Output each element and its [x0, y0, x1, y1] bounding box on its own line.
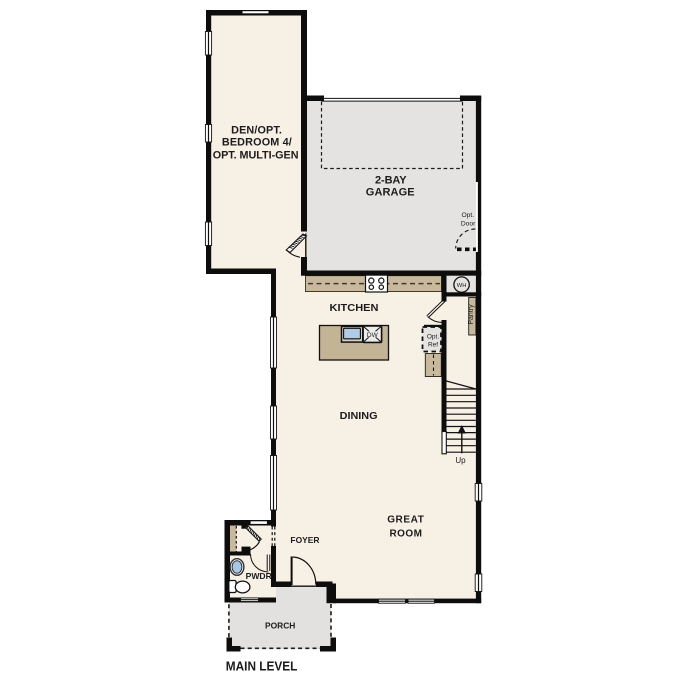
svg-text:KITCHEN: KITCHEN: [330, 303, 379, 314]
svg-text:ROOM: ROOM: [389, 528, 422, 539]
svg-text:WH: WH: [457, 283, 467, 289]
svg-text:GREAT: GREAT: [387, 515, 424, 526]
svg-text:PORCH: PORCH: [265, 621, 295, 631]
svg-text:MAIN LEVEL: MAIN LEVEL: [226, 659, 298, 674]
svg-text:FOYER: FOYER: [290, 535, 319, 545]
svg-text:Opt.: Opt.: [461, 212, 474, 219]
svg-text:DINING: DINING: [340, 411, 378, 422]
svg-text:Door: Door: [461, 220, 476, 227]
svg-text:Ref: Ref: [428, 341, 438, 348]
svg-text:PWDR: PWDR: [246, 572, 272, 581]
svg-text:OPT. MULTI-GEN: OPT. MULTI-GEN: [213, 150, 299, 162]
svg-text:BEDROOM 4/: BEDROOM 4/: [222, 136, 292, 148]
svg-text:Opt.: Opt.: [427, 334, 439, 341]
svg-text:DEN/OPT.: DEN/OPT.: [231, 125, 282, 137]
svg-text:Up: Up: [455, 456, 466, 465]
svg-text:Pantry: Pantry: [468, 304, 475, 325]
svg-text:GARAGE: GARAGE: [366, 187, 415, 199]
svg-text:2-BAY: 2-BAY: [375, 175, 407, 187]
svg-text:DW: DW: [367, 332, 379, 339]
